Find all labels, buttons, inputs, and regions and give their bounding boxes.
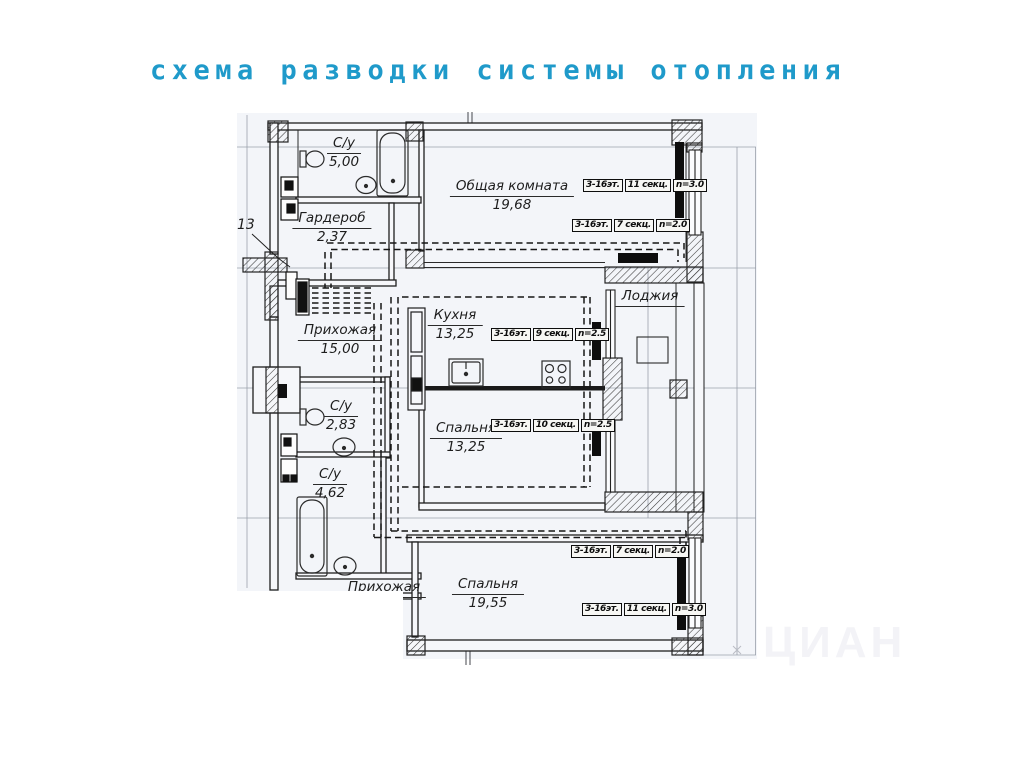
radiator-floors: 3-16эт. bbox=[572, 219, 612, 232]
room-area: 13,25 bbox=[428, 326, 483, 343]
room-area: 13,25 bbox=[430, 439, 502, 456]
radiator-sections: 7 секц. bbox=[614, 219, 654, 232]
room-name: Лоджия bbox=[616, 289, 685, 307]
room-label-bathroom-283: С/у 2,83 bbox=[324, 396, 358, 433]
room-area: 4,62 bbox=[313, 485, 347, 502]
radiator-power: n=2.0 bbox=[656, 219, 690, 232]
room-area: 5,00 bbox=[327, 154, 361, 171]
watermark: ЦИАН bbox=[763, 618, 906, 668]
scan-cutout bbox=[237, 591, 403, 675]
radiator-sections: 9 секц. bbox=[533, 328, 573, 341]
room-name: С/у bbox=[327, 136, 361, 154]
radiator-sections: 11 секц. bbox=[625, 179, 671, 192]
room-label-bathroom-462: С/у 4,62 bbox=[313, 464, 347, 501]
room-label-bathroom-5: С/у 5,00 bbox=[327, 133, 361, 170]
radiator-power: n=3.0 bbox=[672, 603, 706, 616]
room-area: 15,00 bbox=[298, 341, 382, 358]
riser-number-label: 13 bbox=[237, 217, 255, 233]
room-label-wardrobe: Гардероб 2,37 bbox=[292, 208, 371, 245]
radiator-spec-5: 3-16эт. 7 секц. n=2.0 bbox=[571, 545, 689, 558]
room-label-common-room: Общая комната 19,68 bbox=[450, 176, 574, 213]
room-area: 2,37 bbox=[292, 229, 371, 246]
room-name: С/у bbox=[313, 467, 347, 485]
room-name: Прихожая bbox=[298, 323, 382, 341]
radiator-sections: 7 секц. bbox=[613, 545, 653, 558]
room-label-bedroom-1955: Спальня 19,55 bbox=[452, 574, 524, 611]
radiator-floors: 3-16эт. bbox=[583, 179, 623, 192]
room-name: Гардероб bbox=[292, 211, 371, 229]
room-label-loggia: Лоджия bbox=[616, 286, 685, 307]
radiator-sections: 10 секц. bbox=[533, 419, 579, 432]
radiator-power: n=3.0 bbox=[673, 179, 707, 192]
radiator-floors: 3-16эт. bbox=[491, 419, 531, 432]
room-name: Общая комната bbox=[450, 179, 574, 197]
radiator-floors: 3-16эт. bbox=[582, 603, 622, 616]
radiator-spec-6: 3-16эт. 11 секц. n=3.0 bbox=[582, 603, 706, 616]
room-area: 19,68 bbox=[450, 197, 574, 214]
radiator-floors: 3-16эт. bbox=[571, 545, 611, 558]
duct-shaft bbox=[408, 308, 425, 410]
room-area: 19,55 bbox=[452, 595, 524, 612]
room-area: 2,83 bbox=[324, 417, 358, 434]
radiator-power: n=2.0 bbox=[655, 545, 689, 558]
room-name: Кухня bbox=[428, 308, 483, 326]
kitchen-bottom-wall bbox=[412, 386, 605, 391]
radiator-spec-1: 3-16эт. 11 секц. n=3.0 bbox=[583, 179, 707, 192]
radiator-spec-2: 3-16эт. 7 секц. n=2.0 bbox=[572, 219, 690, 232]
page: { "title": "схема разводки системы отопл… bbox=[0, 0, 1028, 766]
room-label-hallway: Прихожая 15,00 bbox=[298, 320, 382, 357]
room-name: Спальня bbox=[452, 577, 524, 595]
room-name: С/у bbox=[324, 399, 358, 417]
wall-black-insert bbox=[278, 384, 287, 398]
radiator-power: n=2.5 bbox=[581, 419, 615, 432]
radiator-sections: 11 секц. bbox=[624, 603, 670, 616]
radiator-spec-3: 3-16эт. 9 секц. n=2.5 bbox=[491, 328, 609, 341]
room-label-kitchen: Кухня 13,25 bbox=[428, 305, 483, 342]
radiator-power: n=2.5 bbox=[575, 328, 609, 341]
radiator-floors: 3-16эт. bbox=[491, 328, 531, 341]
radiator-spec-4: 3-16эт. 10 секц. n=2.5 bbox=[491, 419, 615, 432]
